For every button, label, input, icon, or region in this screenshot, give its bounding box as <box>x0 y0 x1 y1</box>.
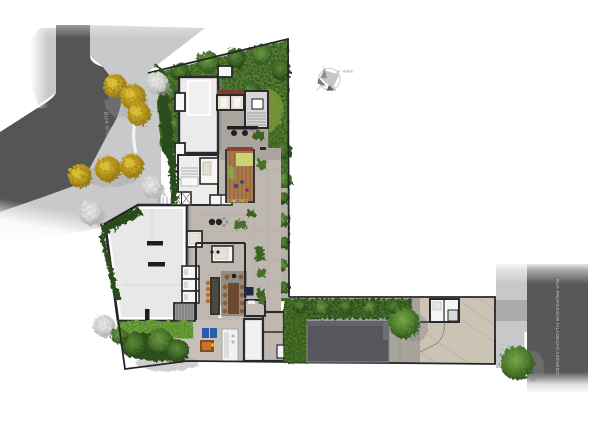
svg-text:RUA PROFESSOR FILADELFO AZEVED: RUA PROFESSOR FILADELFO AZEVEDO <box>555 279 560 376</box>
svg-text:NORTE: NORTE <box>343 70 353 74</box>
